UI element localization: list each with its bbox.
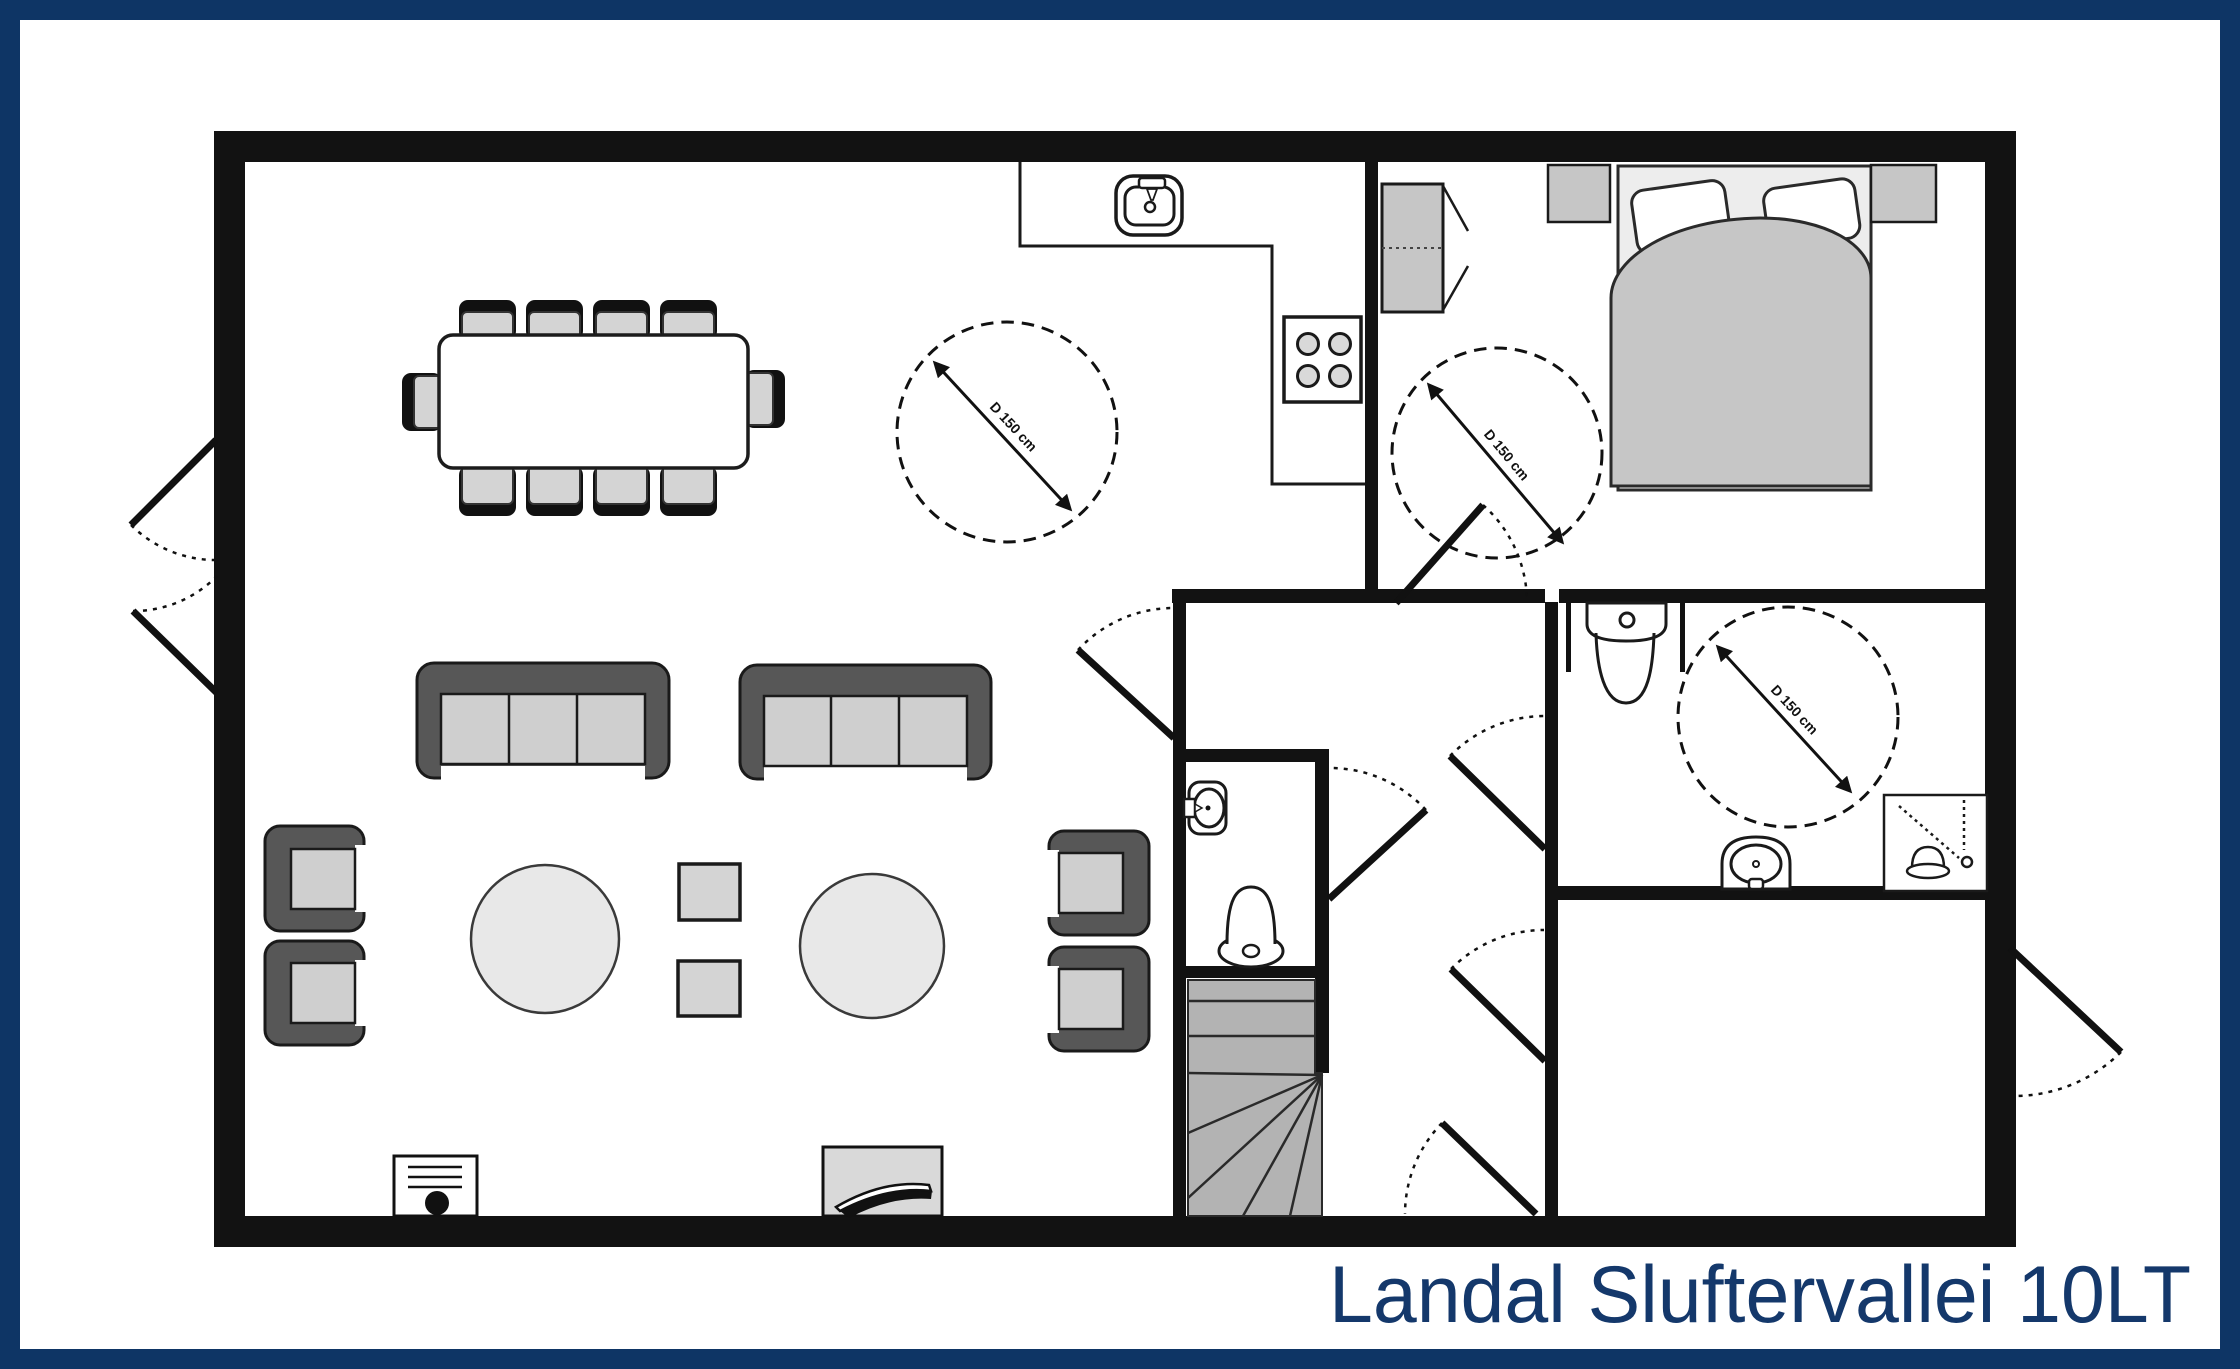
svg-text:Landal Sluftervallei 10LT: Landal Sluftervallei 10LT	[1329, 1250, 2191, 1340]
